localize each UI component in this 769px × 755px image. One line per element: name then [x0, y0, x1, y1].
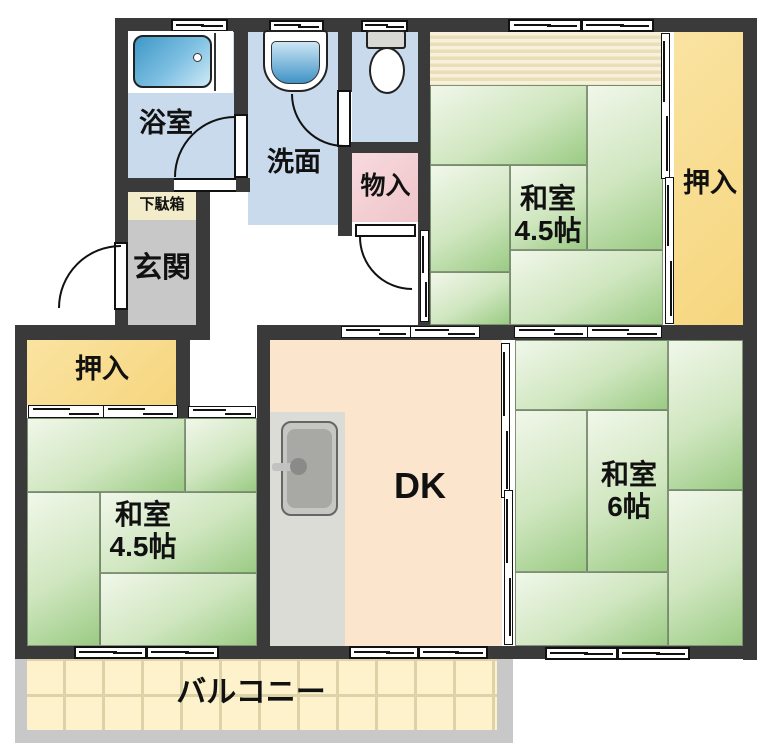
tatami-top-right-wood-strip	[430, 32, 663, 85]
window	[418, 646, 488, 659]
tatami-right-label: 和室6帖	[569, 456, 689, 526]
sliding-door	[103, 405, 178, 418]
sliding-door	[501, 343, 510, 498]
wall	[338, 142, 430, 153]
tatami-mat	[100, 573, 257, 646]
wall	[176, 325, 190, 418]
window	[349, 646, 419, 659]
bathtub-icon	[133, 35, 212, 88]
tatami-mat	[510, 250, 663, 325]
tatami-mat	[430, 85, 587, 165]
door-leaf-bathroom	[234, 114, 248, 178]
faucet-knob-icon	[290, 458, 307, 475]
washroom-label: 洗面	[254, 145, 334, 181]
tatami-mat	[430, 272, 510, 325]
floor-plan: 浴室 洗面 物入 下駄箱 玄関 押入 押入 和室4.5帖 和室4.5帖 和室6帖…	[0, 0, 769, 755]
tatami-bottom-left-label: 和室4.5帖	[83, 496, 203, 566]
tatami-mat	[185, 418, 257, 492]
closet-right-label: 押入	[668, 166, 752, 202]
bathroom-label: 浴室	[126, 106, 206, 142]
window	[617, 647, 690, 660]
sliding-door	[504, 490, 513, 645]
wall	[15, 325, 27, 659]
sliding-door	[28, 405, 104, 418]
sliding-door	[341, 326, 411, 338]
closet-left-label: 押入	[60, 352, 144, 388]
entrance-label: 玄関	[120, 250, 204, 288]
bathtub-drain	[193, 53, 202, 62]
storage-label: 物入	[353, 169, 418, 203]
tatami-mat	[515, 572, 668, 646]
door-pocket	[420, 230, 429, 322]
window	[74, 646, 147, 659]
door-leaf-toilet	[337, 90, 351, 147]
window	[508, 19, 582, 32]
balcony-label: バルコニー	[166, 674, 336, 712]
sliding-door	[188, 406, 256, 418]
wall	[257, 325, 757, 340]
sliding-door	[410, 326, 480, 338]
window	[146, 646, 219, 659]
shoe-cabinet-label: 下駄箱	[128, 190, 196, 220]
wall	[257, 325, 270, 646]
toilet-icon	[369, 47, 405, 94]
tatami-top-right-label: 和室4.5帖	[488, 180, 608, 250]
bathtub-divider	[214, 33, 216, 91]
door-arc-entrance	[59, 246, 121, 308]
wall	[234, 32, 248, 116]
sliding-door	[661, 33, 670, 179]
sliding-door	[514, 326, 588, 338]
tatami-mat	[27, 418, 185, 492]
window	[545, 647, 618, 660]
door-leaf-hall	[355, 224, 416, 237]
sliding-door	[587, 326, 662, 338]
dining-kitchen-label: DK	[375, 462, 465, 510]
tatami-mat	[515, 340, 668, 410]
wall	[338, 18, 352, 92]
washbasin-bowl	[271, 41, 320, 84]
door-arc-hall	[360, 237, 412, 289]
window	[581, 19, 654, 32]
wall	[338, 145, 352, 236]
